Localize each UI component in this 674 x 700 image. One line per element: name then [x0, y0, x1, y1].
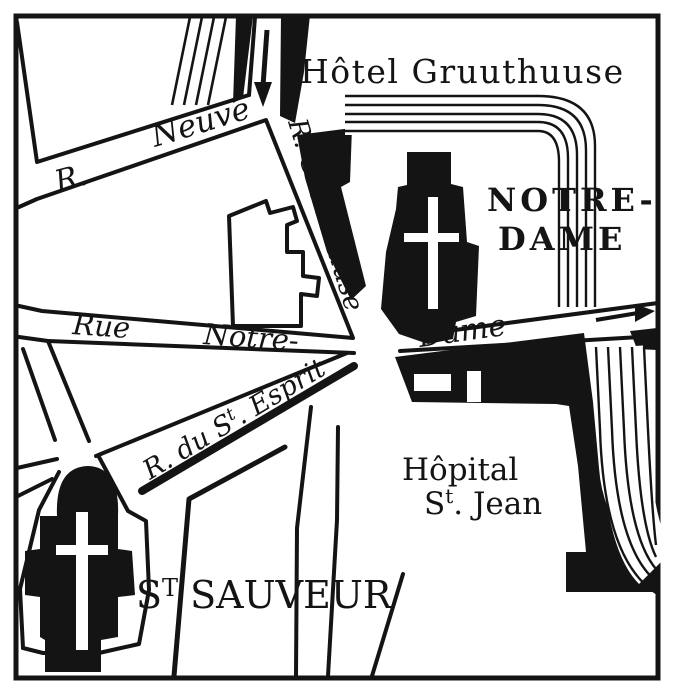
label-hopital-line2: St. Jean — [424, 484, 542, 522]
hopital-rest: . Jean — [453, 486, 542, 522]
map-canvas: Hôtel Gruuthuuse NOTRE- DAME Hôpital St.… — [0, 0, 674, 700]
label-hotel-gruuthuuse: Hôtel Gruuthuuse — [300, 52, 625, 91]
hopital-notch-2 — [467, 371, 481, 402]
sauveur-cap: S — [136, 573, 162, 617]
hopital-cap: S — [424, 486, 445, 522]
label-rue-notre-word1: Rue — [71, 307, 132, 345]
hopital-notch-1 — [414, 374, 451, 391]
hopital-sup: t — [445, 484, 453, 508]
bruges-street-map: Hôtel Gruuthuuse NOTRE- DAME Hôpital St.… — [0, 0, 674, 700]
label-hopital-line1: Hôpital — [402, 452, 518, 488]
sauveur-sup: T — [162, 574, 178, 602]
label-rue-notre-word2: Notre- — [202, 317, 300, 358]
label-notre-dame-line2: DAME — [498, 220, 626, 258]
label-notre-dame-line1: NOTRE- — [487, 181, 657, 219]
sauveur-rest: SAUVEUR — [178, 573, 393, 617]
